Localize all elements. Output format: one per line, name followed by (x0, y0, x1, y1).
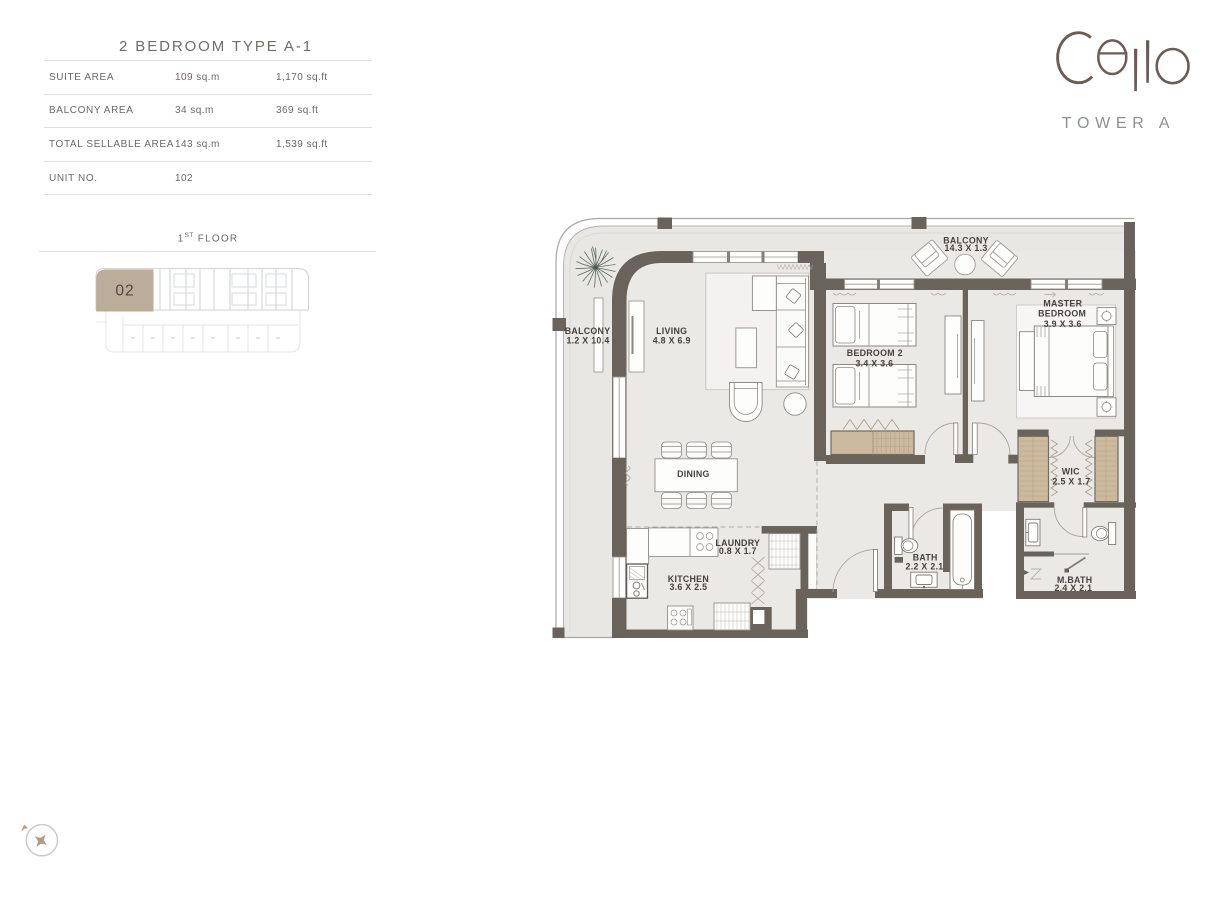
svg-text:TOWER A: TOWER A (1062, 115, 1175, 132)
svg-text:2.5 X 1.7: 2.5 X 1.7 (1053, 477, 1091, 487)
svg-text:3.4 X 3.6: 3.4 X 3.6 (855, 358, 893, 368)
svg-text:BALCONY: BALCONY (565, 326, 611, 336)
svg-text:14.3 X 1.3: 14.3 X 1.3 (944, 243, 987, 253)
svg-text:DINING: DINING (677, 469, 710, 479)
svg-text:02: 02 (115, 283, 134, 300)
svg-text:0.8 X 1.7: 0.8 X 1.7 (719, 546, 757, 556)
svg-text:BEDROOM 2: BEDROOM 2 (847, 348, 903, 358)
svg-text:LIVING: LIVING (656, 326, 687, 336)
svg-text:2.2 X 2.1: 2.2 X 2.1 (906, 562, 944, 572)
svg-text:WIC: WIC (1062, 467, 1080, 477)
svg-text:4.8 X 6.9: 4.8 X 6.9 (653, 336, 691, 346)
svg-text:3.9 X 3.6: 3.9 X 3.6 (1044, 319, 1082, 329)
svg-text:1.2 X 10.4: 1.2 X 10.4 (566, 336, 609, 346)
svg-text:MASTER: MASTER (1043, 299, 1082, 309)
svg-text:2.4 X 2.1: 2.4 X 2.1 (1054, 583, 1092, 593)
svg-text:BEDROOM: BEDROOM (1038, 309, 1086, 319)
svg-text:3.6 X 2.5: 3.6 X 2.5 (669, 582, 707, 592)
